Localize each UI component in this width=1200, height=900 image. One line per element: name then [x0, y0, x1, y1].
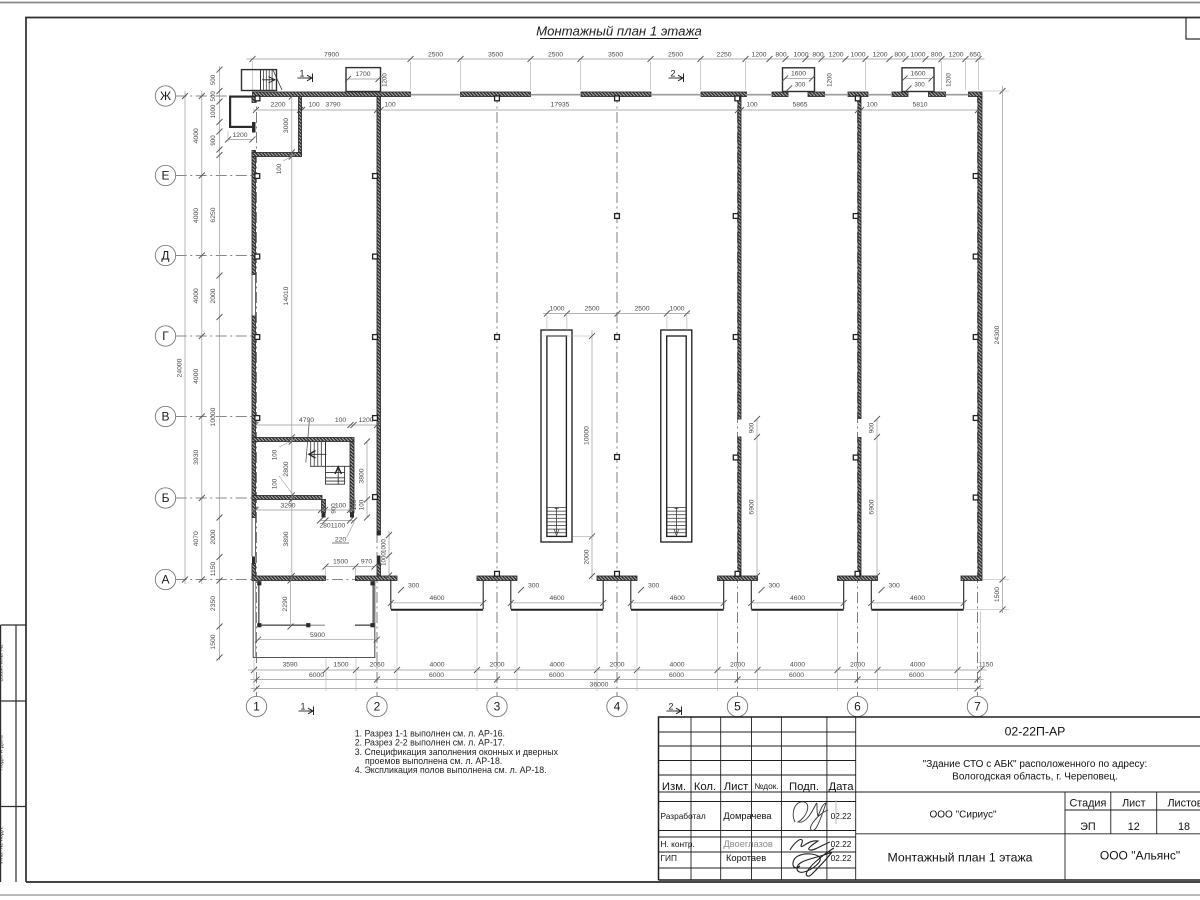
svg-text:6: 6: [854, 700, 861, 714]
svg-text:Подп.: Подп.: [789, 781, 819, 793]
svg-text:280: 280: [319, 523, 331, 530]
svg-text:2000: 2000: [609, 662, 624, 669]
svg-text:2250: 2250: [716, 52, 731, 59]
svg-text:Ж: Ж: [160, 89, 171, 103]
svg-text:Б: Б: [162, 491, 170, 505]
svg-text:02.22: 02.22: [831, 853, 852, 863]
svg-text:ООО "Сириус": ООО "Сириус": [929, 810, 997, 821]
svg-text:Инв. № подл.: Инв. № подл.: [0, 826, 5, 864]
svg-text:2290: 2290: [282, 596, 289, 611]
svg-text:"Здание СТО с АБК" расположенн: "Здание СТО с АБК" расположенного по адр…: [923, 759, 1148, 770]
svg-text:Подп. и дата: Подп. и дата: [0, 735, 5, 771]
svg-text:3790: 3790: [325, 102, 340, 109]
svg-text:800: 800: [894, 52, 906, 59]
svg-text:300: 300: [648, 583, 660, 590]
svg-text:4600: 4600: [910, 595, 925, 602]
svg-text:2800: 2800: [283, 461, 290, 476]
svg-text:4790: 4790: [299, 417, 314, 424]
svg-text:Г: Г: [162, 329, 169, 343]
svg-text:5: 5: [734, 700, 741, 714]
svg-text:2000: 2000: [210, 288, 217, 303]
svg-text:7900: 7900: [324, 52, 339, 59]
svg-text:2350: 2350: [210, 596, 217, 611]
svg-text:1200: 1200: [828, 52, 843, 59]
svg-text:6000: 6000: [309, 672, 324, 679]
svg-text:4: 4: [614, 700, 621, 714]
svg-text:500: 500: [210, 91, 217, 102]
svg-text:4070: 4070: [193, 531, 200, 546]
svg-text:2000: 2000: [850, 662, 865, 669]
svg-text:18: 18: [1178, 821, 1190, 833]
svg-text:1500: 1500: [994, 587, 1001, 602]
svg-text:Стадия: Стадия: [1069, 798, 1106, 810]
svg-text:4. Экспликация полов выполнена: 4. Экспликация полов выполнена см. л. АР…: [355, 765, 547, 775]
svg-text:2000: 2000: [210, 529, 217, 544]
svg-text:Н. контр.: Н. контр.: [661, 839, 695, 849]
svg-text:1000: 1000: [850, 52, 865, 59]
svg-text:6900: 6900: [749, 499, 756, 514]
svg-text:500: 500: [210, 74, 217, 85]
svg-text:2060: 2060: [369, 662, 384, 669]
svg-text:3930: 3930: [193, 450, 200, 465]
svg-text:7: 7: [974, 700, 981, 714]
svg-text:800: 800: [931, 52, 943, 59]
svg-text:4600: 4600: [790, 595, 805, 602]
svg-text:1000: 1000: [381, 539, 388, 553]
svg-text:1: 1: [300, 702, 305, 712]
svg-text:Домрачева: Домрачева: [723, 811, 772, 821]
svg-text:Лист: Лист: [1122, 798, 1146, 810]
svg-text:А: А: [161, 573, 169, 587]
svg-text:4000: 4000: [193, 128, 200, 143]
svg-text:1150: 1150: [210, 561, 217, 576]
svg-text:24000: 24000: [177, 358, 184, 377]
svg-text:100: 100: [335, 417, 347, 424]
svg-text:1000: 1000: [549, 306, 564, 313]
svg-text:100: 100: [308, 102, 320, 109]
svg-text:650: 650: [969, 52, 981, 59]
svg-text:2500: 2500: [668, 52, 683, 59]
svg-text:4000: 4000: [193, 288, 200, 303]
svg-text:300: 300: [914, 82, 925, 89]
svg-text:100: 100: [276, 163, 283, 174]
svg-text:36000: 36000: [590, 682, 609, 689]
svg-text:4000: 4000: [910, 662, 925, 669]
svg-text:300: 300: [408, 583, 420, 590]
svg-text:3290: 3290: [280, 503, 295, 510]
svg-text:1000: 1000: [669, 306, 684, 313]
svg-text:В: В: [161, 410, 169, 424]
svg-text:14010: 14010: [283, 286, 290, 305]
svg-text:Д: Д: [161, 249, 169, 263]
svg-text:2500: 2500: [428, 52, 443, 59]
svg-text:100: 100: [272, 449, 279, 460]
svg-text:1600: 1600: [910, 71, 925, 78]
svg-text:Е: Е: [161, 169, 169, 183]
svg-text:4000: 4000: [669, 662, 684, 669]
svg-text:Дата: Дата: [828, 781, 854, 793]
svg-text:1150: 1150: [979, 662, 994, 669]
svg-text:ГИП: ГИП: [661, 853, 677, 863]
svg-text:5900: 5900: [310, 632, 325, 639]
svg-text:6000: 6000: [789, 672, 804, 679]
svg-text:900: 900: [749, 422, 756, 433]
svg-text:1: 1: [299, 69, 304, 79]
svg-text:3590: 3590: [282, 662, 297, 669]
svg-text:Кол.: Кол.: [694, 781, 716, 793]
svg-text:100: 100: [272, 478, 279, 489]
svg-text:1200: 1200: [948, 52, 963, 59]
svg-text:2500: 2500: [584, 306, 599, 313]
svg-text:2500: 2500: [548, 52, 563, 59]
svg-text:900: 900: [210, 135, 217, 146]
svg-text:4600: 4600: [549, 595, 564, 602]
svg-text:3800: 3800: [359, 468, 366, 483]
svg-text:4600: 4600: [670, 595, 685, 602]
svg-text:800: 800: [775, 52, 787, 59]
svg-text:1200: 1200: [872, 52, 887, 59]
svg-text:Листов: Листов: [1167, 798, 1200, 810]
svg-text:100: 100: [866, 102, 878, 109]
svg-text:Двоеглазов: Двоеглазов: [723, 839, 772, 849]
svg-text:100: 100: [746, 102, 758, 109]
svg-text:2: 2: [670, 69, 675, 79]
svg-text:2500: 2500: [634, 306, 649, 313]
svg-text:1000: 1000: [210, 104, 217, 118]
svg-text:1500: 1500: [210, 634, 217, 649]
svg-text:300: 300: [769, 583, 781, 590]
svg-text:2000: 2000: [584, 549, 591, 564]
svg-text:Разработал: Разработал: [661, 811, 706, 821]
svg-text:10000: 10000: [584, 426, 591, 445]
svg-text:Лист: Лист: [724, 781, 749, 793]
svg-text:2200: 2200: [270, 102, 285, 109]
svg-text:10000: 10000: [210, 407, 217, 426]
svg-text:300: 300: [795, 82, 806, 89]
svg-text:6900: 6900: [869, 499, 876, 514]
svg-text:3: 3: [494, 700, 501, 714]
svg-text:4600: 4600: [429, 595, 444, 602]
svg-text:Монтажный план 1 этажа: Монтажный план 1 этажа: [887, 851, 1032, 865]
svg-text:1000: 1000: [793, 52, 808, 59]
svg-text:1500: 1500: [333, 559, 348, 566]
svg-text:12: 12: [1128, 821, 1140, 833]
svg-text:1500: 1500: [333, 662, 348, 669]
svg-text:3500: 3500: [488, 52, 503, 59]
svg-text:02.22: 02.22: [831, 811, 852, 821]
svg-text:5865: 5865: [792, 102, 807, 109]
svg-text:1200: 1200: [358, 417, 373, 424]
svg-text:02-22П-АР: 02-22П-АР: [1005, 725, 1066, 739]
svg-text:6000: 6000: [549, 672, 564, 679]
svg-text:6000: 6000: [909, 672, 924, 679]
svg-text:1700: 1700: [355, 71, 370, 78]
svg-text:900: 900: [869, 422, 876, 433]
svg-text:№док.: №док.: [754, 781, 778, 791]
svg-text:1600: 1600: [791, 71, 806, 78]
svg-text:6000: 6000: [429, 672, 444, 679]
svg-text:100: 100: [384, 102, 396, 109]
svg-text:6250: 6250: [210, 207, 217, 222]
svg-text:100: 100: [351, 499, 358, 510]
svg-text:4000: 4000: [193, 369, 200, 384]
svg-text:02.22: 02.22: [831, 839, 852, 849]
svg-text:6000: 6000: [669, 672, 684, 679]
svg-text:24300: 24300: [994, 325, 1001, 344]
svg-text:300: 300: [528, 583, 540, 590]
svg-text:100: 100: [359, 499, 366, 510]
svg-text:17935: 17935: [551, 102, 570, 109]
svg-text:2: 2: [374, 700, 381, 714]
svg-text:Изм.: Изм.: [662, 781, 686, 793]
svg-text:3000: 3000: [283, 118, 290, 133]
svg-text:2: 2: [668, 702, 673, 712]
svg-text:5810: 5810: [912, 102, 927, 109]
svg-text:1000: 1000: [381, 552, 388, 566]
svg-text:Взам. инв. №: Взам. инв. №: [0, 644, 5, 681]
svg-text:Коротаев: Коротаев: [726, 853, 766, 863]
svg-text:4000: 4000: [790, 662, 805, 669]
svg-text:900: 900: [331, 503, 338, 514]
svg-text:1200: 1200: [946, 73, 953, 87]
svg-text:ЭП: ЭП: [1080, 821, 1096, 833]
svg-text:800: 800: [812, 52, 824, 59]
svg-text:1100: 1100: [331, 523, 346, 530]
svg-text:4000: 4000: [549, 662, 564, 669]
svg-text:ООО "Альянс": ООО "Альянс": [1100, 849, 1180, 863]
svg-text:3500: 3500: [608, 52, 623, 59]
svg-text:1: 1: [253, 700, 260, 714]
svg-text:220: 220: [335, 537, 347, 544]
svg-text:2000: 2000: [730, 662, 745, 669]
svg-text:300: 300: [889, 583, 901, 590]
svg-text:1200: 1200: [382, 73, 389, 87]
svg-text:1200: 1200: [827, 73, 834, 87]
svg-text:4000: 4000: [429, 662, 444, 669]
svg-text:Монтажный план 1 этажа: Монтажный план 1 этажа: [536, 24, 702, 39]
svg-text:1200: 1200: [751, 52, 766, 59]
svg-text:970: 970: [361, 559, 373, 566]
svg-text:2000: 2000: [489, 662, 504, 669]
svg-text:Вологодская область, г. Черепо: Вологодская область, г. Череповец.: [952, 771, 1118, 783]
svg-text:1000: 1000: [910, 52, 925, 59]
svg-text:1200: 1200: [232, 132, 247, 139]
svg-text:3890: 3890: [283, 531, 290, 546]
svg-text:4000: 4000: [193, 208, 200, 223]
